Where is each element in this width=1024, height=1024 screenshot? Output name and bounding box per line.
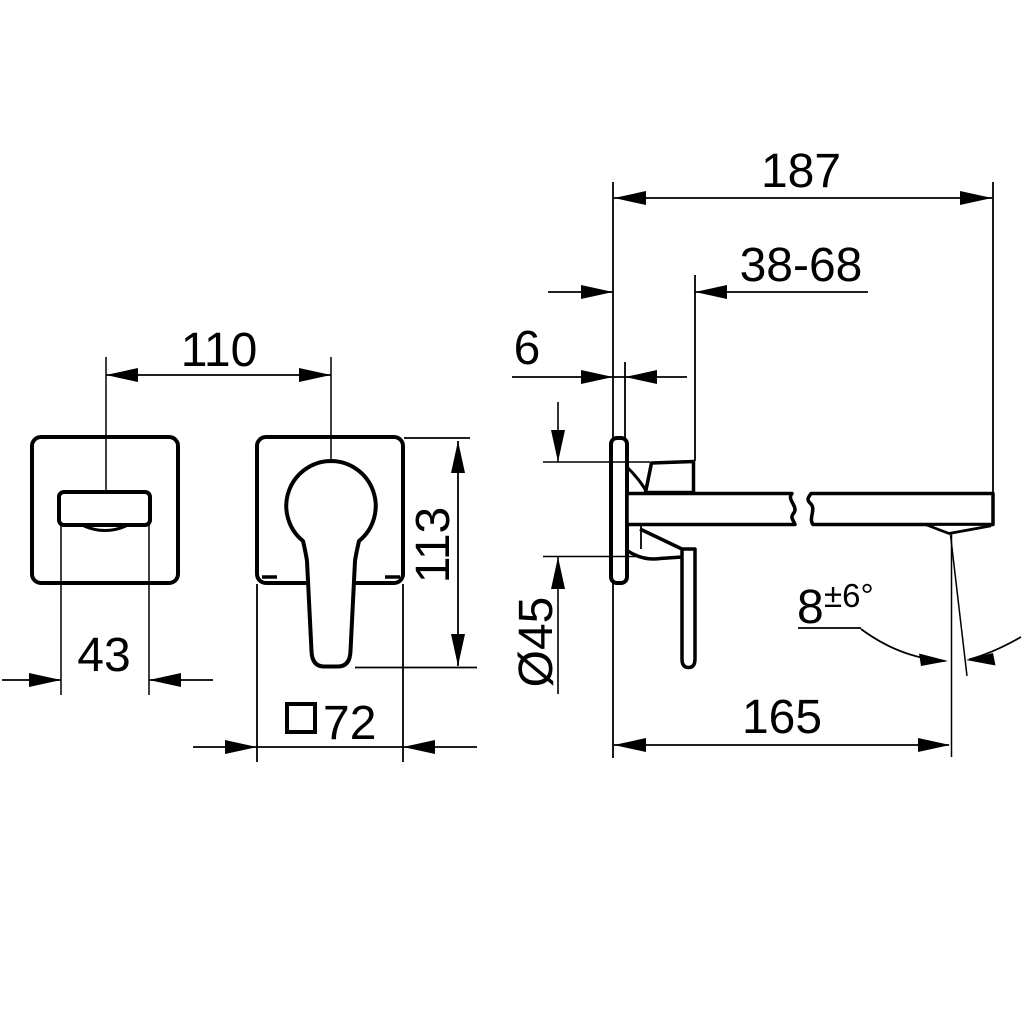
valve-body-curve [627, 550, 683, 559]
dim-113-label: 113 [407, 507, 460, 584]
dim-arrow [919, 654, 948, 667]
dim-165: 165 [614, 691, 950, 752]
dim-arrow [966, 653, 996, 666]
dim-arrow [225, 740, 257, 754]
handle-escutcheon-curve [627, 467, 646, 491]
spout-right-segment [808, 494, 993, 525]
dim-arrow [614, 738, 646, 752]
dim-angle-label: 8 [797, 581, 824, 634]
dim-arrow [581, 370, 613, 384]
escutcheon-side [611, 438, 627, 583]
dim-38-68-label: 38-68 [740, 239, 863, 292]
dim-arrow [149, 673, 181, 687]
dim-arrow [299, 368, 331, 382]
dim-38-68-line [548, 275, 868, 461]
dim-110-label: 110 [181, 324, 258, 377]
angle-arc-right [969, 637, 1021, 660]
technical-drawing-page: 187 38-68 6 Ø45 110 43 113 [0, 0, 1024, 1024]
dim-arrow [451, 441, 465, 473]
dim-arrow [29, 673, 61, 687]
dim-arrow [695, 285, 727, 299]
dim-arrow [551, 557, 565, 589]
dim-187: 187 [614, 145, 993, 492]
dim-arrow [581, 285, 613, 299]
dim-arrow [551, 430, 565, 462]
handle-side [646, 462, 694, 493]
square-symbol-icon [287, 704, 315, 732]
valve-body-slant [640, 529, 684, 550]
dim-43: 43 [2, 629, 213, 687]
dim-arrow [614, 191, 646, 205]
spout-front [59, 492, 150, 525]
dim-45-label: Ø45 [510, 597, 563, 688]
front-view-mixer [257, 357, 403, 667]
dim-110: 110 [106, 324, 331, 382]
dim-187-label: 187 [761, 145, 841, 198]
lever-side [682, 549, 695, 668]
dim-arrow [918, 738, 950, 752]
dim-187-line [614, 182, 993, 492]
aerator-wedge [926, 525, 991, 534]
faucet-dimension-diagram: 187 38-68 6 Ø45 110 43 113 [0, 0, 1024, 1024]
spray-angled-line [951, 535, 968, 676]
dim-arrow [451, 634, 465, 666]
dim-arrow [960, 191, 992, 205]
dim-6-label: 6 [514, 322, 541, 375]
dim-angle: 8 ±6° [797, 577, 1021, 666]
dim-arrow [106, 368, 138, 382]
angle-arc-left [861, 629, 945, 661]
spout-left-segment [627, 494, 795, 525]
dim-arrow [403, 740, 435, 754]
dim-6: 6 [512, 322, 687, 438]
dim-43-label: 43 [77, 629, 130, 682]
dim-165-label: 165 [742, 691, 822, 744]
dim-arrow [625, 370, 657, 384]
dim-72-label: 72 [323, 697, 376, 750]
dim-38-68: 38-68 [548, 239, 868, 461]
dim-angle-tolerance-label: ±6° [824, 577, 874, 614]
